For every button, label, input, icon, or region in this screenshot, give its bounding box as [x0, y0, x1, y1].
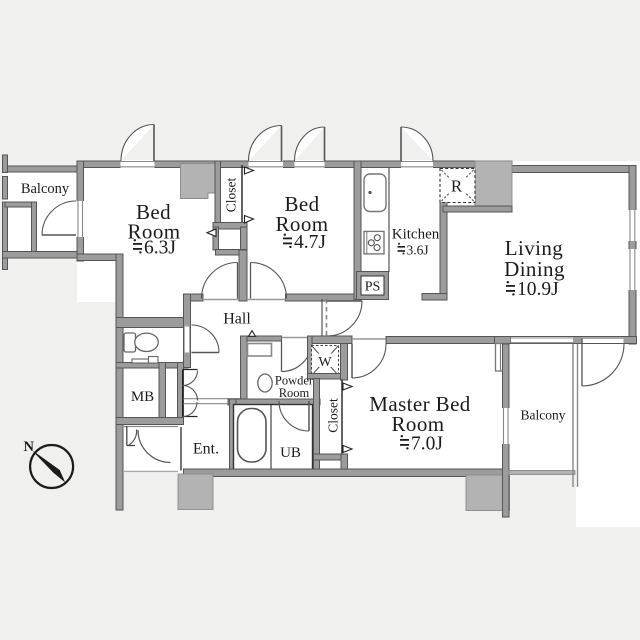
svg-text:Ent.: Ent.	[193, 441, 219, 458]
svg-text:Room: Room	[279, 386, 310, 400]
svg-text:W: W	[318, 355, 332, 370]
svg-text:Balcony: Balcony	[521, 408, 566, 423]
svg-text:Room: Room	[392, 412, 445, 436]
svg-text:7.0J: 7.0J	[411, 434, 443, 455]
svg-text:3.6J: 3.6J	[407, 243, 429, 258]
svg-text:PS: PS	[365, 280, 381, 295]
svg-text:Closet: Closet	[224, 178, 239, 213]
svg-text:MB: MB	[131, 389, 154, 405]
svg-text:N: N	[24, 439, 35, 455]
svg-text:Balcony: Balcony	[21, 181, 70, 197]
svg-text:4.7J: 4.7J	[294, 232, 326, 253]
svg-text:Hall: Hall	[223, 311, 251, 328]
svg-text:Kitchen: Kitchen	[392, 227, 440, 243]
svg-text:Dining: Dining	[504, 257, 565, 281]
svg-text:R: R	[451, 177, 463, 196]
svg-text:6.3J: 6.3J	[144, 238, 176, 259]
svg-text:Closet: Closet	[326, 398, 341, 433]
svg-text:UB: UB	[280, 445, 301, 461]
svg-text:10.9J: 10.9J	[517, 279, 559, 300]
